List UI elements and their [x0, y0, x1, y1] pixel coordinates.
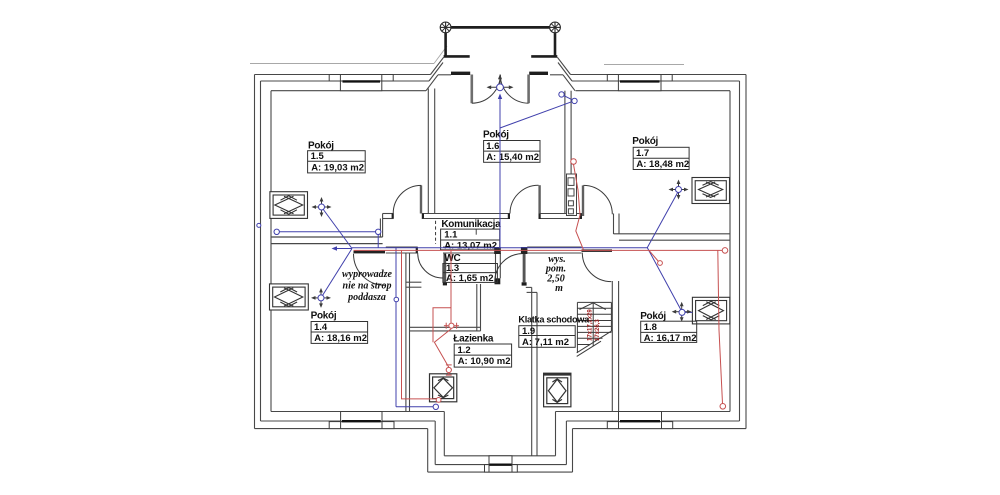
- svg-text:1.1: 1.1: [444, 230, 458, 241]
- svg-text:1.8: 1.8: [644, 322, 657, 333]
- svg-text:Łazienka: Łazienka: [453, 333, 494, 344]
- svg-text:nie na strop: nie na strop: [343, 281, 392, 292]
- svg-text:A: 13,07 m2: A: 13,07 m2: [444, 240, 497, 251]
- svg-text:A: 1,65 m2: A: 1,65 m2: [446, 273, 494, 284]
- svg-text:Klatka schodowa: Klatka schodowa: [518, 315, 590, 325]
- svg-text:17x26,3: 17x26,3: [595, 319, 601, 341]
- svg-text:A: 10,90 m2: A: 10,90 m2: [458, 356, 511, 367]
- svg-text:A: 18,48 m2: A: 18,48 m2: [636, 159, 689, 170]
- svg-text:1.6: 1.6: [486, 141, 499, 152]
- svg-text:1.4: 1.4: [314, 322, 328, 333]
- svg-text:A: 15,40 m2: A: 15,40 m2: [486, 152, 539, 163]
- svg-text:Pokój: Pokój: [311, 311, 337, 322]
- svg-text:A: 7,11 m2: A: 7,11 m2: [522, 337, 569, 348]
- svg-text:Komunikacja: Komunikacja: [441, 219, 501, 230]
- svg-text:1.9: 1.9: [522, 326, 535, 337]
- svg-text:wyprowadze: wyprowadze: [342, 269, 393, 280]
- svg-text:m: m: [555, 283, 563, 294]
- svg-text:A: 19,03 m2: A: 19,03 m2: [311, 162, 364, 173]
- svg-text:Pokój: Pokój: [308, 141, 334, 152]
- svg-text:Pokój: Pokój: [640, 311, 666, 322]
- svg-text:A: 16,17 m2: A: 16,17 m2: [644, 333, 697, 344]
- svg-text:Pokój: Pokój: [483, 130, 509, 141]
- svg-text:17x17,2x29: 17x17,2x29: [588, 309, 594, 341]
- svg-text:poddasza: poddasza: [347, 292, 386, 303]
- svg-text:1.2: 1.2: [458, 345, 471, 356]
- svg-text:A: 18,16 m2: A: 18,16 m2: [314, 333, 367, 344]
- svg-text:Pokój: Pokój: [632, 136, 658, 147]
- svg-text:1.5: 1.5: [311, 151, 325, 162]
- svg-text:1.7: 1.7: [636, 148, 649, 159]
